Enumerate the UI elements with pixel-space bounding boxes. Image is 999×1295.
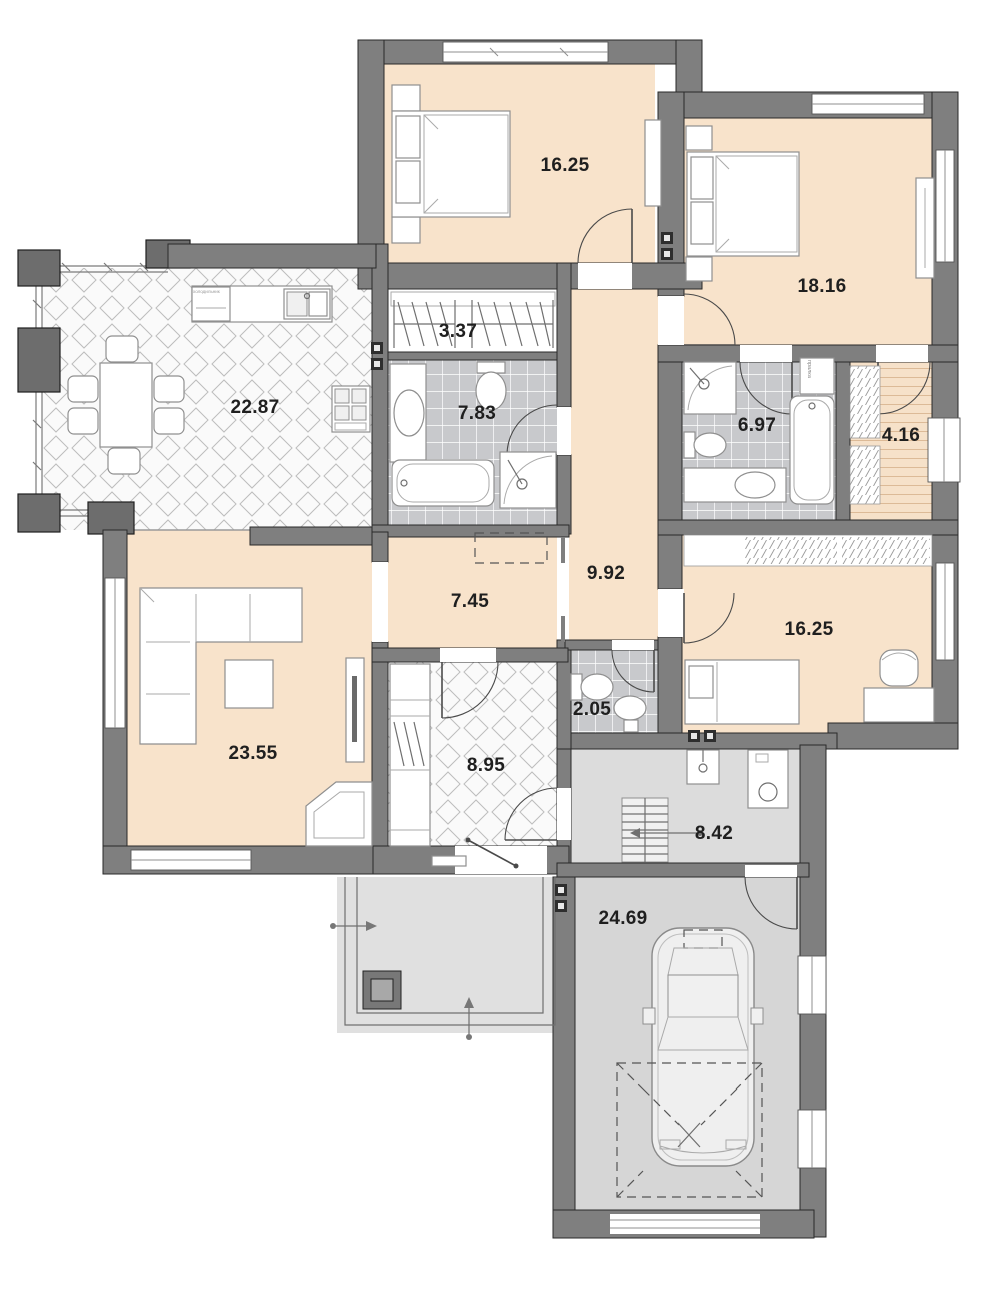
washer-label: пралка	[806, 360, 812, 394]
sink	[735, 472, 775, 498]
shower	[684, 362, 736, 414]
room-area-corridor: 9.92	[587, 563, 625, 585]
room-area-kitchen-dining: 22.87	[230, 397, 279, 419]
porch-column-core	[371, 979, 393, 1001]
coffee-table	[225, 660, 273, 708]
room-area-bathroom-main: 7.83	[458, 403, 496, 425]
car-mirror	[643, 1008, 655, 1024]
entrance-closet	[390, 664, 430, 846]
room-area-bedroom-right: 18.16	[797, 276, 846, 298]
toilet	[581, 674, 613, 700]
bay-pillar	[88, 502, 134, 534]
window	[812, 94, 924, 114]
sink	[614, 696, 646, 720]
bay-pillar	[18, 250, 60, 286]
boiler	[748, 750, 788, 808]
window	[131, 850, 251, 870]
toilet	[684, 432, 726, 458]
chair	[880, 650, 918, 686]
room-area-wc: 2.05	[573, 699, 611, 721]
bathtub	[790, 396, 834, 504]
floor-plan-canvas: 16.25 18.16 22.87 3.37 7.83 6.97 4.16 9.…	[0, 0, 999, 1295]
sauna-shelves	[850, 366, 880, 504]
room-area-garage: 24.69	[598, 908, 647, 930]
bathtub	[392, 460, 494, 506]
single-bed	[685, 660, 799, 724]
room-area-utility: 8.42	[695, 823, 733, 845]
dresser	[645, 120, 661, 206]
stove	[332, 386, 370, 432]
window	[443, 42, 608, 62]
room-area-hall: 7.45	[451, 591, 489, 613]
bay-pillar	[18, 494, 60, 532]
bay-pillar	[18, 328, 60, 392]
utility-sink	[687, 750, 719, 784]
window	[928, 418, 960, 482]
porch-deck	[337, 877, 563, 1033]
car	[643, 928, 763, 1166]
room-area-bedroom-bottom: 16.25	[784, 619, 833, 641]
closet-band	[684, 535, 932, 566]
window	[105, 578, 125, 728]
room-fill-corridor	[569, 289, 658, 640]
window	[936, 563, 954, 660]
tv-stand	[346, 658, 364, 762]
desk	[864, 688, 934, 722]
sink-pedestal	[624, 720, 638, 732]
room-area-living: 23.55	[228, 743, 277, 765]
sink	[394, 390, 424, 436]
window	[936, 150, 954, 262]
car-mirror	[751, 1008, 763, 1024]
window	[798, 956, 826, 1014]
shower	[500, 452, 556, 508]
fridge-label: холодильник	[193, 289, 229, 294]
room-area-bedroom-top: 16.25	[540, 155, 589, 177]
room-area-sauna: 4.16	[882, 425, 920, 447]
room-area-entrance: 8.95	[467, 755, 505, 777]
window	[798, 1110, 826, 1168]
room-area-wardrobe: 3.37	[439, 321, 477, 343]
room-area-bathroom-second: 6.97	[738, 415, 776, 437]
floor-plan-drawing	[0, 0, 999, 1295]
toilet-tank	[571, 674, 582, 700]
tv	[352, 676, 357, 742]
